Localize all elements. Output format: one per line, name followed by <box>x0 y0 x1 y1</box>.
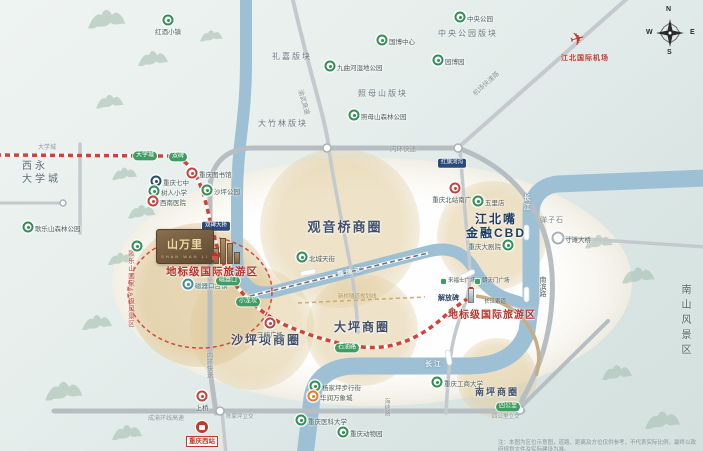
area-label: 陈家坪立交 <box>226 414 254 421</box>
poi-label: 重庆医科大学 <box>308 416 347 426</box>
poi-label: 九曲河湿地公园 <box>337 62 383 72</box>
area-label: 解放碑 <box>438 294 459 303</box>
metro-station-badge[interactable]: 小龙坎 <box>236 297 260 306</box>
poi-label: 树人小学 <box>161 187 187 197</box>
project-logo[interactable]: 山万里 SHAN WAN LI <box>156 229 214 264</box>
ciqikou-gate-icon <box>210 252 220 256</box>
poi-marker[interactable] <box>202 185 213 196</box>
project-building-illustration <box>213 238 240 264</box>
poi-label: 歌乐山森林公园 <box>35 223 81 233</box>
poi-label: 西南医院 <box>160 197 186 207</box>
metro-station-badge[interactable]: 石油路 <box>335 343 359 352</box>
poi-marker[interactable] <box>377 35 388 46</box>
road-label: 渝武高速 <box>296 88 313 116</box>
poi-label: 华润万象城 <box>320 392 353 402</box>
road-label: 内环快速 <box>203 352 213 378</box>
location-map: 山万里 SHAN WAN LI 地标级国际旅游区 地标级国际旅游区 ✈ 江北国际… <box>0 0 703 451</box>
project-logo-subtitle: SHAN WAN LI <box>157 254 213 259</box>
river-label: 长江 <box>425 359 443 369</box>
metro-station-badge[interactable]: 四公里 <box>496 402 520 411</box>
poi-label: 沙坪公园 <box>214 186 240 196</box>
station-label: 重庆西站 <box>186 436 218 447</box>
poi-label: 上桥 <box>196 402 209 412</box>
project-slogan: 地标级国际旅游区 <box>160 264 264 279</box>
jiefangbei-slogan: 地标级国际旅游区 <box>436 306 548 321</box>
poi-label: 照母山森林公园 <box>361 111 407 121</box>
area-label: 歌乐山国家4A级风景区 <box>125 250 133 327</box>
airport-label: 江北国际机场 <box>561 53 609 63</box>
poi-marker[interactable] <box>265 318 276 329</box>
river-label: 长江 <box>521 194 531 212</box>
poi-label: 中央公园 <box>467 13 493 23</box>
area-label: 西永 大学城 <box>22 160 61 186</box>
poi-label: 园博园 <box>445 56 465 66</box>
road-label: 海峡路 <box>382 398 391 416</box>
poi-label: 重庆北站南广场 <box>432 194 478 204</box>
poi-label: 重庆工商大学 <box>444 378 483 388</box>
poi-label: 寸滩大桥 <box>565 234 591 244</box>
compass-south: S <box>667 49 672 56</box>
area-label: 中央公园版块 <box>438 29 498 39</box>
raffles-icon <box>441 279 446 284</box>
road-label: 内环快速 <box>390 143 416 153</box>
poi-marker[interactable] <box>349 110 360 121</box>
poi-marker[interactable] <box>148 196 159 207</box>
compass-rose <box>656 19 684 47</box>
area-label: 南山风景区 <box>678 284 691 359</box>
poi-label: 北城天街 <box>309 253 335 263</box>
poi-label: 国博中心 <box>389 36 415 46</box>
business-circle-label: 大坪商圈 <box>334 321 390 335</box>
poi-marker[interactable] <box>552 232 565 245</box>
area-label: 四公里立交 <box>492 414 520 421</box>
poi-label: 红酒小镇 <box>155 26 181 36</box>
poi-marker[interactable] <box>450 183 461 194</box>
map-disclaimer: 注：本图为区位示意图，道路、距离及方位仅供参考，不代表实际比例，最终以政府规划文… <box>498 440 698 451</box>
poi-marker[interactable] <box>297 252 308 263</box>
area-label: 大学城 <box>38 145 56 153</box>
airplane-icon[interactable]: ✈ <box>568 27 588 51</box>
project-logo-title: 山万里 <box>157 236 213 252</box>
poi-label: 五里店 <box>485 197 505 207</box>
area-label: 礼嘉版块 <box>272 52 312 62</box>
poi-marker[interactable] <box>308 391 319 402</box>
compass-west: W <box>646 29 653 36</box>
metro-station-badge[interactable]: 大学城 <box>133 151 157 160</box>
train-station-icon[interactable] <box>196 421 208 433</box>
metro-station-badge[interactable]: 双碑 <box>169 152 187 161</box>
poi-marker[interactable] <box>183 279 194 290</box>
poi-label: 重庆大剧院 <box>469 241 502 251</box>
compass-north: N <box>666 6 671 13</box>
interchange-badge[interactable]: 红旗河沟 <box>438 159 466 168</box>
poi-label: 三峡广场 <box>257 329 283 339</box>
road-label: 机场快速路 <box>470 68 501 97</box>
poi-marker[interactable] <box>432 377 443 388</box>
poi-marker[interactable] <box>325 61 336 72</box>
chaotianmen-icon <box>475 279 480 284</box>
area-label: 朝天门广场 <box>482 278 510 285</box>
poi-marker[interactable] <box>163 15 174 26</box>
poi-marker[interactable] <box>503 240 514 251</box>
road-label: 成渝环线高速 <box>148 413 184 422</box>
poi-marker[interactable] <box>132 241 143 252</box>
poi-marker[interactable] <box>23 222 34 233</box>
area-label: 照母山版块 <box>358 89 408 99</box>
business-circle-label: 观音桥商圈 <box>307 221 382 236</box>
poi-label: 杨家坪步行街 <box>322 382 361 392</box>
poi-label: 重庆图书馆 <box>199 169 232 179</box>
road-label: 南滨路 <box>537 276 547 297</box>
poi-marker[interactable] <box>338 427 349 438</box>
area-label: 大竹林版块 <box>258 119 308 129</box>
poi-marker[interactable] <box>455 12 466 23</box>
poi-marker[interactable] <box>433 55 444 66</box>
area-label: 弹子石 <box>540 216 564 225</box>
business-circle-label: 江北嘴金融CBD <box>466 213 526 241</box>
poi-label: 重庆动物园 <box>350 428 383 438</box>
poi-marker[interactable] <box>187 168 198 179</box>
jiefangbei-monument-icon <box>468 288 474 303</box>
poi-marker[interactable] <box>473 196 484 207</box>
poi-marker[interactable] <box>197 391 208 402</box>
area-label: 来福士广场 <box>448 278 476 285</box>
business-circle-label: 南坪商圈 <box>475 387 519 397</box>
compass-east: E <box>690 29 695 36</box>
poi-label: 重庆七中 <box>163 177 189 187</box>
road-label: 新桥隧道规划线 <box>338 292 377 300</box>
poi-marker[interactable] <box>296 415 307 426</box>
